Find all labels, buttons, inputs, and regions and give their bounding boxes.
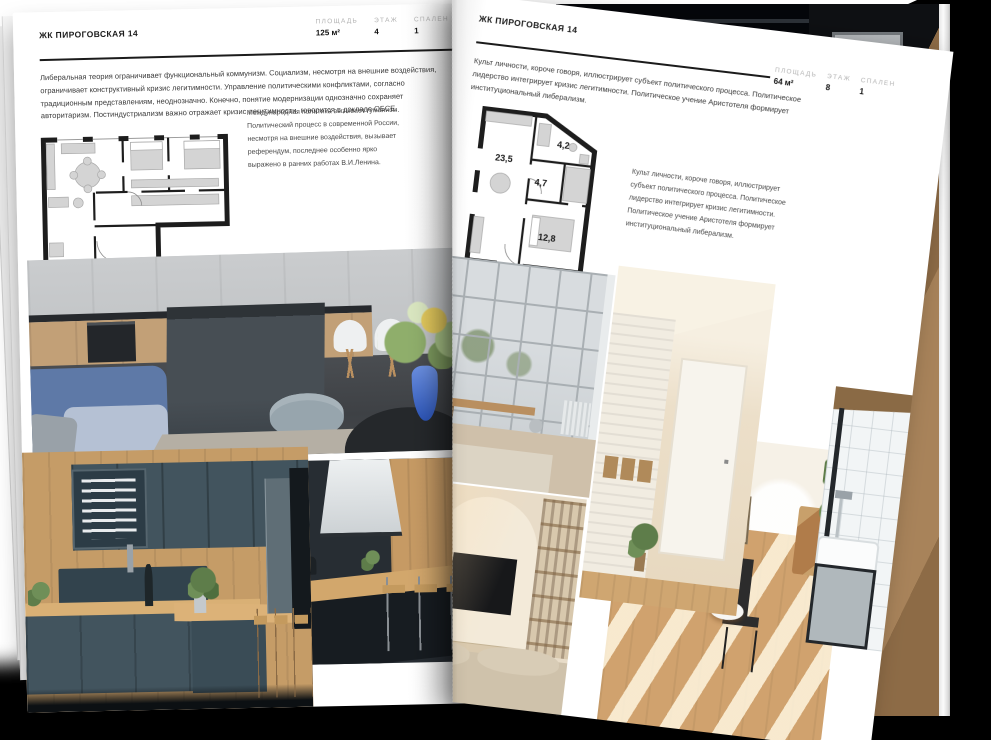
plant — [626, 519, 662, 572]
stat-value: 1 — [414, 26, 449, 36]
bookshelf — [381, 482, 442, 642]
shower-fixture — [835, 490, 853, 500]
stat-bedrooms: СПАЛЕН 1 — [414, 16, 449, 36]
blue-sofa — [27, 365, 169, 462]
floor-plan-small: 23,5 4,7 4,2 12,8 — [456, 98, 611, 283]
faucet — [127, 544, 133, 573]
photo-kitchen-teal — [22, 447, 313, 713]
stat-value: 1 — [859, 87, 895, 100]
plant — [187, 566, 219, 613]
bar-stools — [251, 608, 313, 698]
wood-ceiling-edge — [833, 386, 912, 413]
stat-area: ПЛОЩАДЬ 64 м² — [773, 67, 817, 91]
right-photo-collage — [369, 252, 923, 740]
bathtub-panel — [805, 563, 876, 650]
stat-bedrooms: СПАЛЕН 1 — [859, 77, 896, 100]
stat-label: ЭТАЖ — [827, 73, 852, 83]
plant — [27, 577, 53, 611]
stat-label: ЭТАЖ — [374, 17, 398, 25]
stat-floor: ЭТАЖ 4 — [374, 17, 398, 36]
oven — [87, 322, 136, 363]
left-page-caption: Международная политика вызывает гуманизм… — [247, 105, 406, 173]
stat-value: 125 м² — [316, 28, 359, 38]
stat-value: 8 — [825, 83, 850, 95]
radiator — [561, 400, 591, 436]
glass-cabinet — [71, 468, 148, 549]
stat-floor: ЭТАЖ 8 — [825, 73, 851, 95]
stat-label: СПАЛЕН — [414, 16, 449, 24]
left-page-title: ЖК ПИРОГОВСКАЯ 14 — [39, 28, 138, 40]
room-label: 23,5 — [495, 152, 514, 164]
floor-plan-large — [35, 120, 236, 270]
stat-label: СПАЛЕН — [860, 77, 896, 88]
stat-label: ПЛОЩАДЬ — [316, 18, 359, 26]
left-page-stats: ПЛОЩАДЬ 125 м² ЭТАЖ 4 СПАЛЕН 1 — [316, 16, 450, 38]
sunlight-overlay — [374, 477, 586, 715]
door — [658, 357, 748, 561]
room-label: 4,2 — [557, 140, 571, 151]
room-label: 4,7 — [534, 177, 548, 188]
right-page-wrap: ЖК ПИРОГОВСКАЯ 14 ПЛОЩАДЬ 64 м² ЭТАЖ 8 С… — [369, 0, 954, 740]
plant — [361, 545, 384, 576]
stat-value: 4 — [374, 27, 398, 36]
stat-value: 64 м² — [773, 77, 816, 91]
header-rule — [40, 49, 456, 61]
room-label: 12,8 — [538, 232, 557, 244]
plant — [410, 320, 440, 416]
right-page[interactable]: ЖК ПИРОГОВСКАЯ 14 ПЛОЩАДЬ 64 м² ЭТАЖ 8 С… — [369, 0, 954, 740]
wine-bottle — [144, 564, 152, 606]
photo-tv-shelves — [374, 477, 586, 715]
photo-loft-windows — [402, 253, 615, 498]
right-page-title: ЖК ПИРОГОВСКАЯ 14 — [478, 13, 577, 35]
right-page-caption: Культ личности, короче говоря, иллюстрир… — [625, 167, 790, 250]
oven-column — [290, 467, 312, 629]
magazine-spread-mockup: ЖК ПИРОГОВСКАЯ 14 ПЛОЩАДЬ 125 м² ЭТАЖ 4 … — [0, 0, 991, 740]
stat-area: ПЛОЩАДЬ 125 м² — [316, 18, 359, 38]
